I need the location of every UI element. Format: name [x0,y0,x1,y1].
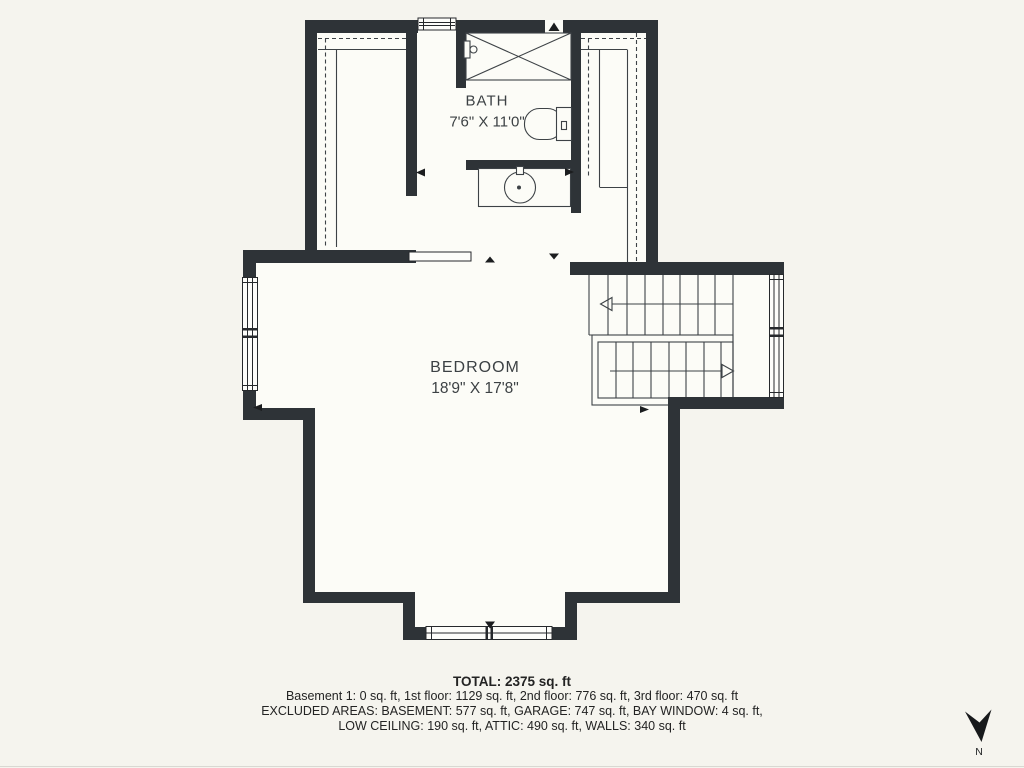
wall-bedroom-top [243,250,416,263]
bedroom-label: BEDROOM [430,359,520,377]
viewport-bottom-edge [0,766,1024,767]
wall-bay-stub-left [415,627,426,640]
wall-closet-left-outer [305,20,317,250]
total-area-line: TOTAL: 2375 sq. ft [0,674,1024,689]
wall-bedroom-east [668,397,680,603]
shower-knob-icon [470,46,477,53]
excluded-areas-line-1: EXCLUDED AREAS: BASEMENT: 577 sq. ft, GA… [0,704,1024,719]
window-top [418,18,456,30]
wall-left-step [243,408,315,420]
wall-bay-left [403,603,415,640]
wall-top-west [305,20,418,33]
area-summary: TOTAL: 2375 sq. ft Basement 1: 0 sq. ft,… [0,674,1024,734]
toilet [525,108,572,141]
window-stairwell-right [770,275,784,398]
wall-top-east [563,20,658,33]
wall-stairwell-top [570,262,784,275]
shower-valve-icon [464,41,470,58]
window-bedroom-left [243,278,258,391]
floorplan-canvas: BATH 7'6" X 11'0" BEDROOM 18'9" X 17'8" … [0,0,1024,768]
wall-closet-left-divider [406,28,417,196]
wall-bottom-west [303,592,415,603]
bath-dimensions: 7'6" X 11'0" [449,114,524,131]
bath-label: BATH [466,93,509,110]
bedroom-dimensions: 18'9" X 17'8" [431,380,519,398]
wall-bedroom-left-upper [243,250,256,278]
wall-bedroom-west [303,420,315,598]
sink-faucet-icon [517,167,524,175]
pocket-door-slab [409,252,471,261]
shower [464,33,571,80]
compass-n-label: N [975,746,983,758]
bay-window [426,627,552,640]
floors-area-line: Basement 1: 0 sq. ft, 1st floor: 1129 sq… [0,689,1024,704]
toilet-flush-button [562,122,567,130]
excluded-areas-line-2: LOW CEILING: 190 sq. ft, ATTIC: 490 sq. … [0,719,1024,734]
bedroom-lower-floor [303,408,680,603]
wall-bay-right [565,603,577,640]
sink-drain-icon [517,186,521,190]
wall-top-mid [456,20,545,33]
wall-bottom-east [565,592,680,603]
wall-closet-right-divider [571,33,581,213]
wall-stairwell-bottom [668,397,784,409]
sink-vanity [479,167,571,207]
wall-closet-right-outer [646,20,658,275]
